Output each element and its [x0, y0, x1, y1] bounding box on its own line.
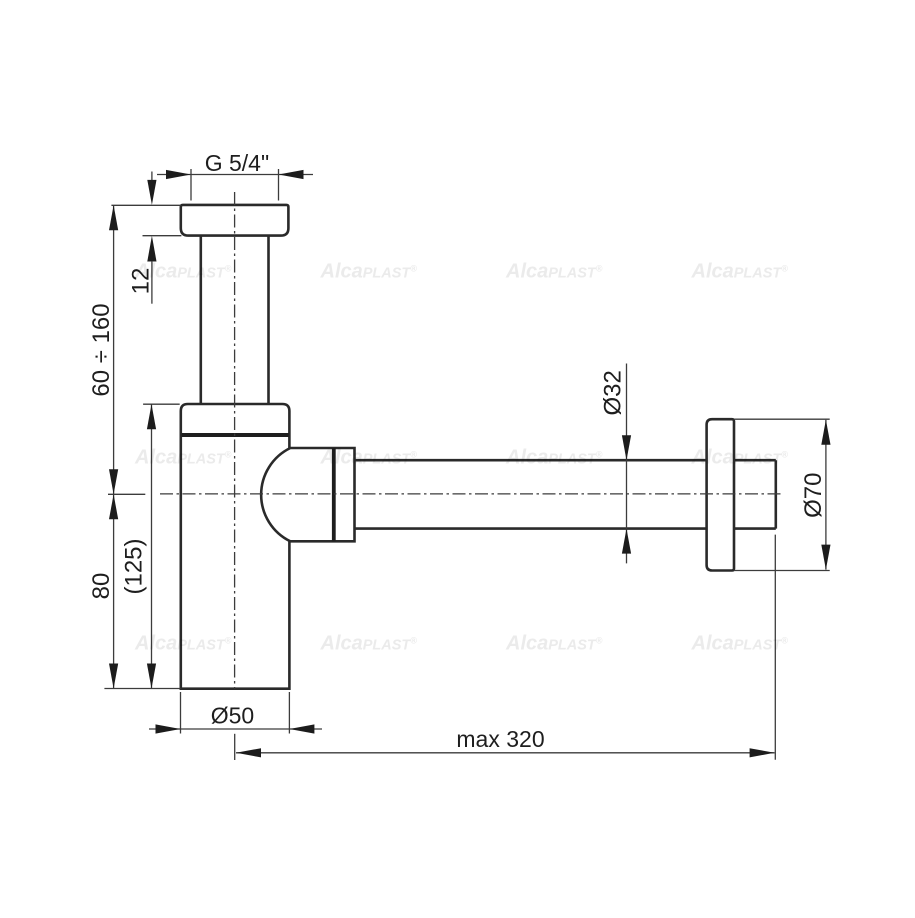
svg-text:Ø70: Ø70 [800, 473, 827, 518]
svg-text:G 5/4": G 5/4" [205, 150, 269, 176]
svg-text:(125): (125) [121, 538, 148, 594]
svg-text:max 320: max 320 [456, 726, 544, 752]
svg-text:Ø32: Ø32 [600, 370, 627, 415]
svg-text:80: 80 [88, 573, 115, 600]
svg-text:Ø50: Ø50 [211, 703, 254, 729]
svg-text:60 ÷ 160: 60 ÷ 160 [88, 303, 115, 396]
